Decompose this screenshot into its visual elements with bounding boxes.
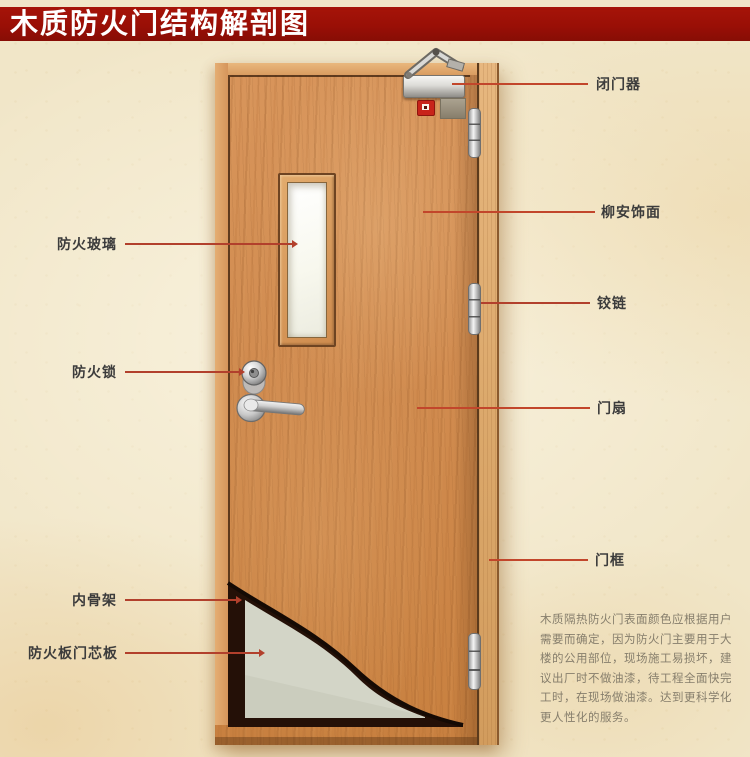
alarm-badge xyxy=(417,100,435,116)
cutaway-section xyxy=(215,575,477,745)
description-line: 议出厂时不做油漆，待工程全面快完 xyxy=(540,670,740,690)
label-door-closer: 闭门器 xyxy=(596,76,641,92)
glass-window-frame xyxy=(278,173,336,347)
leader-fire-lock xyxy=(125,371,240,373)
door-frame-strip xyxy=(479,63,499,745)
leader-fire-board-core xyxy=(125,652,260,654)
hinge-top xyxy=(468,108,481,158)
label-lauan-veneer: 柳安饰面 xyxy=(601,204,661,220)
page-title: 木质防火门结构解剖图 xyxy=(0,7,750,41)
label-inner-skeleton: 内骨架 xyxy=(72,592,117,608)
description-line: 更人性化的服务。 xyxy=(540,709,740,729)
panel-groove-line xyxy=(228,75,470,585)
leader-door-leaf xyxy=(417,407,590,409)
description-text: 木质隔热防火门表面颜色应根据用户 需要而确定，因为防火门主要用于大 楼的公用部位… xyxy=(540,611,740,728)
label-door-leaf: 门扇 xyxy=(597,400,627,416)
leader-hinge xyxy=(481,302,590,304)
label-door-frame: 门框 xyxy=(595,552,625,568)
leader-inner-skeleton xyxy=(125,599,237,601)
description-line: 工时，在现场做油漆。达到更科学化 xyxy=(540,689,740,709)
hinge-bottom xyxy=(468,633,481,690)
info-plate xyxy=(440,98,466,119)
description-line: 木质隔热防火门表面颜色应根据用户 xyxy=(540,611,740,631)
leader-door-closer xyxy=(452,83,588,85)
fire-glass-pane xyxy=(287,182,327,338)
label-fire-lock: 防火锁 xyxy=(72,364,117,380)
description-line: 楼的公用部位，现场施工易损坏，建 xyxy=(540,650,740,670)
label-hinge: 铰链 xyxy=(597,295,627,311)
leader-door-frame xyxy=(489,559,588,561)
hinge-middle xyxy=(468,283,481,335)
door-closer-arm xyxy=(392,44,487,99)
title-banner: 木质防火门结构解剖图 xyxy=(0,7,750,41)
description-line: 需要而确定，因为防火门主要用于大 xyxy=(540,631,740,651)
label-fire-board-core: 防火板门芯板 xyxy=(28,645,118,661)
leader-lauan-veneer xyxy=(423,211,595,213)
alarm-badge-dot xyxy=(424,106,427,109)
label-fire-glass: 防火玻璃 xyxy=(57,236,117,252)
leader-fire-glass xyxy=(125,243,293,245)
door-handle xyxy=(233,391,313,425)
